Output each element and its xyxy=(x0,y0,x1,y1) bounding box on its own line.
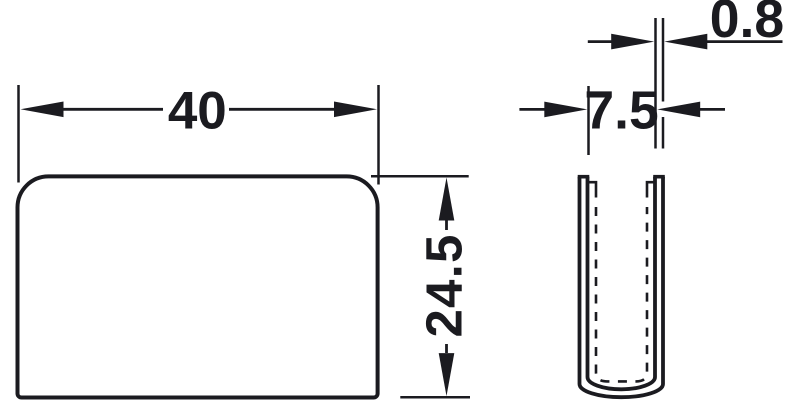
svg-text:40: 40 xyxy=(168,82,227,141)
svg-text:24.5: 24.5 xyxy=(415,233,472,337)
svg-text:0.8: 0.8 xyxy=(710,0,784,49)
svg-text:7.5: 7.5 xyxy=(584,82,658,141)
